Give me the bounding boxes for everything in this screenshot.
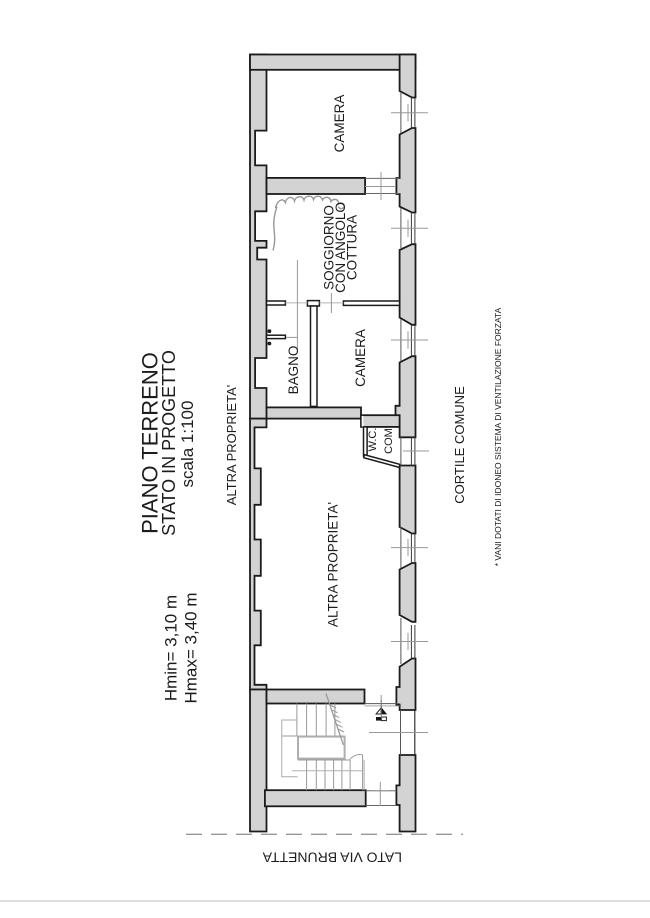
svg-text:COTTURA: COTTURA — [344, 215, 359, 280]
svg-text:* VANI DOTATI DI IDONEO SISTEM: * VANI DOTATI DI IDONEO SISTEMA DI VENTI… — [493, 307, 503, 566]
svg-text:LATO VIA BRUNETTA: LATO VIA BRUNETTA — [262, 850, 402, 866]
svg-text:Hmax= 3,40 m: Hmax= 3,40 m — [182, 592, 201, 703]
svg-text:CAMERA: CAMERA — [353, 329, 368, 387]
svg-text:scala 1:100: scala 1:100 — [178, 401, 197, 488]
svg-text:STATO IN PROGETTO: STATO IN PROGETTO — [159, 350, 179, 536]
svg-text:BAGNO: BAGNO — [286, 346, 301, 395]
svg-text:ALTRA PROPRIETA': ALTRA PROPRIETA' — [224, 385, 239, 505]
svg-text:ALTRA PROPRIETA': ALTRA PROPRIETA' — [325, 502, 340, 627]
svg-text:COM.: COM. — [383, 425, 395, 454]
svg-text:CORTILE COMUNE: CORTILE COMUNE — [452, 386, 467, 504]
svg-text:Hmin= 3,10 m: Hmin= 3,10 m — [162, 595, 181, 701]
svg-text:W.C.: W.C. — [367, 428, 379, 452]
svg-text:CAMERA: CAMERA — [332, 95, 347, 153]
